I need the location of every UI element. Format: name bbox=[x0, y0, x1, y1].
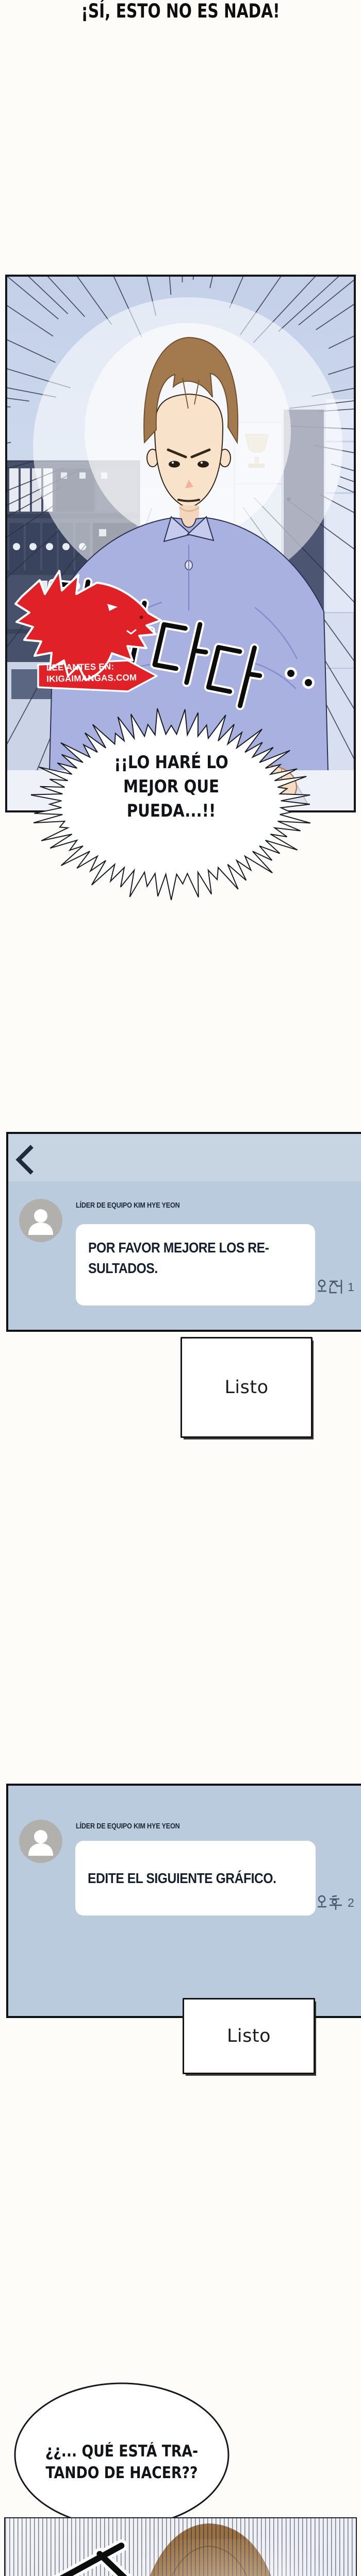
narration-text: ¡SÍ, ESTO NO ES NADA! bbox=[36, 0, 325, 22]
watermark-link[interactable]: IKIGAIMANGAS.COM bbox=[46, 672, 137, 685]
person-icon bbox=[19, 1199, 62, 1242]
chat-panel-2: LÍDER DE EQUIPO KIM HYE YEON EDITE EL SI… bbox=[6, 1784, 361, 2018]
chat-message: POR FAVOR MEJORE LOS RE- SULTADOS. bbox=[76, 1224, 315, 1306]
chat-sender-name: LÍDER DE EQUIPO KIM HYE YEON bbox=[76, 1822, 180, 1831]
chat-message: EDITE EL SIGUIENTE GRÁFICO. bbox=[75, 1841, 316, 1916]
timestamp-digit: 2 bbox=[348, 1896, 354, 1910]
avatar bbox=[19, 1820, 62, 1863]
speech-bubble-effort-text: ¡¡LO HARÉ LO MEJOR QUE PUEDA...!! bbox=[60, 751, 282, 823]
timestamp: 1 bbox=[318, 1279, 354, 1295]
translator-watermark: LEE ANTES EN: IKIGAIMANGAS.COM bbox=[1, 566, 166, 694]
speech-bubble-question-text: ¿¿... QUÉ ESTÁ TRA- TANDO DE HACER?? bbox=[15, 2441, 228, 2484]
webtoon-page: ¡SÍ, ESTO NO ES NADA! bbox=[0, 0, 361, 2576]
back-icon[interactable] bbox=[14, 1144, 37, 1175]
reply-box-listo-1: Listo bbox=[180, 1337, 313, 1438]
chat-sender-name: LÍDER DE EQUIPO KIM HYE YEON bbox=[76, 1201, 180, 1210]
timestamp-digit: 1 bbox=[348, 1280, 354, 1294]
chat-panel-1: LÍDER DE EQUIPO KIM HYE YEON POR FAVOR M… bbox=[6, 1132, 361, 1332]
avatar bbox=[19, 1199, 62, 1242]
chat-header bbox=[8, 1134, 361, 1181]
reply-box-listo-2: Listo bbox=[183, 1998, 315, 2074]
watermark-line1: LEE ANTES EN: bbox=[46, 660, 137, 673]
person-icon bbox=[19, 1820, 62, 1863]
timestamp: 2 bbox=[318, 1895, 354, 1910]
